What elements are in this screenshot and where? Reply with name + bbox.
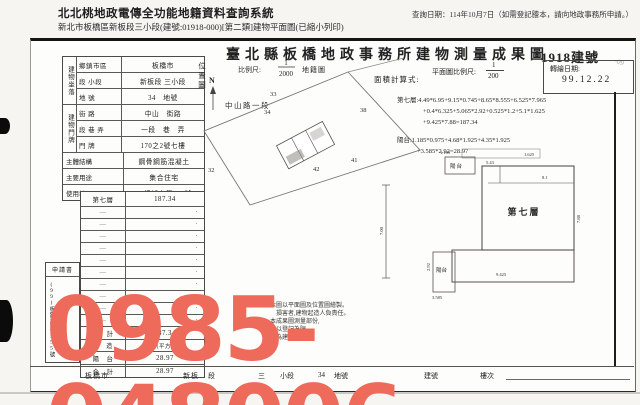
table-row: 地 號 34 地號 bbox=[77, 89, 204, 104]
map-scale-denominator: 2000 bbox=[279, 70, 294, 78]
table-row: 段 巷 弄 一段 巷 弄 bbox=[77, 121, 204, 137]
empty-row: —· bbox=[81, 207, 204, 219]
dimension-label: 5.43 bbox=[486, 160, 495, 165]
dot-mark: · bbox=[126, 219, 204, 230]
map-kind-label: 地籍圖 bbox=[302, 65, 326, 74]
boundary-extension bbox=[348, 58, 404, 72]
watermark-text: 0985-048006 bbox=[46, 286, 640, 405]
scan-artifact bbox=[0, 300, 13, 342]
dash-mark: — bbox=[81, 219, 126, 230]
site-group-label: 建物坐落 bbox=[63, 57, 77, 104]
row-label: 鄉鎮市區 bbox=[77, 57, 122, 72]
dash-mark: — bbox=[81, 267, 126, 278]
dash-mark: — bbox=[81, 243, 126, 254]
door-group-label: 建物門牌 bbox=[63, 105, 77, 152]
table-row: 鄉鎮市區 板橋市 bbox=[77, 57, 204, 73]
structure-row: 主體結構 鋼骨鋼筋混凝土 bbox=[63, 153, 204, 169]
row-value: 170之2號七樓 bbox=[122, 137, 204, 152]
row-label: 段 小段 bbox=[77, 73, 122, 88]
parcel-number: 42 bbox=[313, 166, 320, 173]
system-title: 北北桃地政電傳全功能地籍資料查詢系統 bbox=[58, 5, 274, 21]
table-row: 街 路 中山 街路 bbox=[77, 105, 204, 121]
floor-area-value: 187.34 bbox=[126, 192, 204, 206]
parcel-number: 32 bbox=[208, 167, 215, 174]
site-group: 建物坐落 鄉鎮市區 板橋市 段 小段 新板段 三小段 地 號 34 地號 bbox=[63, 57, 204, 105]
dash-mark: — bbox=[81, 231, 126, 242]
dimension-label: 1.185 bbox=[440, 150, 451, 155]
dot-mark: · bbox=[126, 231, 204, 242]
dot-mark: · bbox=[126, 255, 204, 266]
redraw-date-label: 轉繪日期: bbox=[550, 64, 580, 74]
location-map-label: 位置圖 bbox=[198, 61, 207, 91]
row-value: 板橋市 bbox=[122, 57, 204, 72]
row-value: 34 地號 bbox=[122, 89, 204, 104]
parcel-number: 34 bbox=[264, 109, 271, 116]
scan-artifact bbox=[0, 118, 10, 134]
floor-plan: 7.00 1.625 陽台 1.185 5.43 8.1 7.88 第七層 9.… bbox=[378, 145, 590, 307]
dimension-label: 2.92 bbox=[426, 263, 431, 271]
floor-area-row: 第七層 187.34 bbox=[81, 192, 204, 207]
table-row: 門 牌 170之2號七樓 bbox=[77, 137, 204, 152]
empty-row: —· bbox=[81, 219, 204, 231]
building-attributes-table: 建物坐落 鄉鎮市區 板橋市 段 小段 新板段 三小段 地 號 34 地號 建物門… bbox=[62, 56, 205, 201]
map-scale-numerator: 1 bbox=[284, 59, 288, 67]
plan-scale-denominator: 200 bbox=[488, 72, 499, 80]
plan-scale-numerator: 1 bbox=[492, 61, 496, 69]
dot-mark: · bbox=[126, 207, 204, 218]
row-value: 鋼骨鋼筋混凝土 bbox=[124, 153, 204, 168]
door-group: 建物門牌 街 路 中山 街路 段 巷 弄 一段 巷 弄 門 牌 170之2號七樓 bbox=[63, 105, 204, 153]
row-label: 街 路 bbox=[77, 105, 122, 120]
row-value: 一段 巷 弄 bbox=[122, 121, 204, 136]
empty-row: —· bbox=[81, 243, 204, 255]
balcony-label: 陽台 bbox=[450, 162, 463, 170]
dimension-label: 7.88 bbox=[576, 214, 581, 223]
row-label: 地 號 bbox=[77, 89, 122, 104]
redraw-date-value: 99.12.22 bbox=[562, 75, 611, 85]
dimension-label: 1.625 bbox=[524, 152, 535, 157]
row-label: 門 牌 bbox=[77, 137, 122, 152]
table-row: 段 小段 新板段 三小段 bbox=[77, 73, 204, 89]
row-label: 主體結構 bbox=[63, 153, 124, 168]
dimension-label: 7.00 bbox=[379, 226, 384, 235]
document-line: 新北市板橋區新板段三小段(建號:01918-000)[第二類]建物平面圖(已縮小… bbox=[58, 21, 344, 33]
dot-mark: · bbox=[126, 267, 204, 278]
query-date: 查詢日期：114年10月7日（如需登記謄本，請向地政事務所申請。） bbox=[412, 9, 633, 20]
redraw-date-box: 轉繪日期: 99.12.22 bbox=[543, 60, 634, 94]
floor-label: 第七層 bbox=[81, 192, 126, 206]
parcel-number: 41 bbox=[351, 157, 358, 164]
scanned-survey-document: 北北桃地政電傳全功能地籍資料查詢系統 查詢日期：114年10月7日（如需登記謄本… bbox=[0, 0, 640, 405]
floor-plan-label: 第七層 bbox=[507, 206, 540, 217]
fraction-bar bbox=[486, 70, 504, 71]
row-label: 主要用途 bbox=[63, 169, 124, 184]
building-footprint bbox=[276, 121, 334, 168]
dimension-label: 8.1 bbox=[542, 175, 548, 180]
empty-row: —· bbox=[81, 255, 204, 267]
dash-mark: — bbox=[81, 255, 126, 266]
usage-row: 主要用途 集合住宅 bbox=[63, 169, 204, 185]
row-value: 中山 街路 bbox=[122, 105, 204, 120]
lower-unit-outline bbox=[452, 250, 574, 282]
parcel-number: 38 bbox=[360, 107, 367, 114]
map-scale-label: 比例尺: bbox=[238, 65, 261, 74]
row-label: 段 巷 弄 bbox=[77, 121, 122, 136]
parcel-number: 33 bbox=[270, 91, 277, 98]
application-label: 申請書 bbox=[46, 263, 79, 277]
balcony-label: 陽台 bbox=[436, 266, 448, 274]
north-label: N bbox=[209, 76, 215, 85]
dot-mark: · bbox=[126, 243, 204, 254]
north-arrowhead bbox=[210, 86, 216, 94]
dash-mark: — bbox=[81, 207, 126, 218]
empty-row: —· bbox=[81, 231, 204, 243]
row-value: 集合住宅 bbox=[124, 169, 204, 184]
row-value: 新板段 三小段 bbox=[122, 73, 204, 88]
dimension-label: 9.425 bbox=[496, 272, 507, 277]
